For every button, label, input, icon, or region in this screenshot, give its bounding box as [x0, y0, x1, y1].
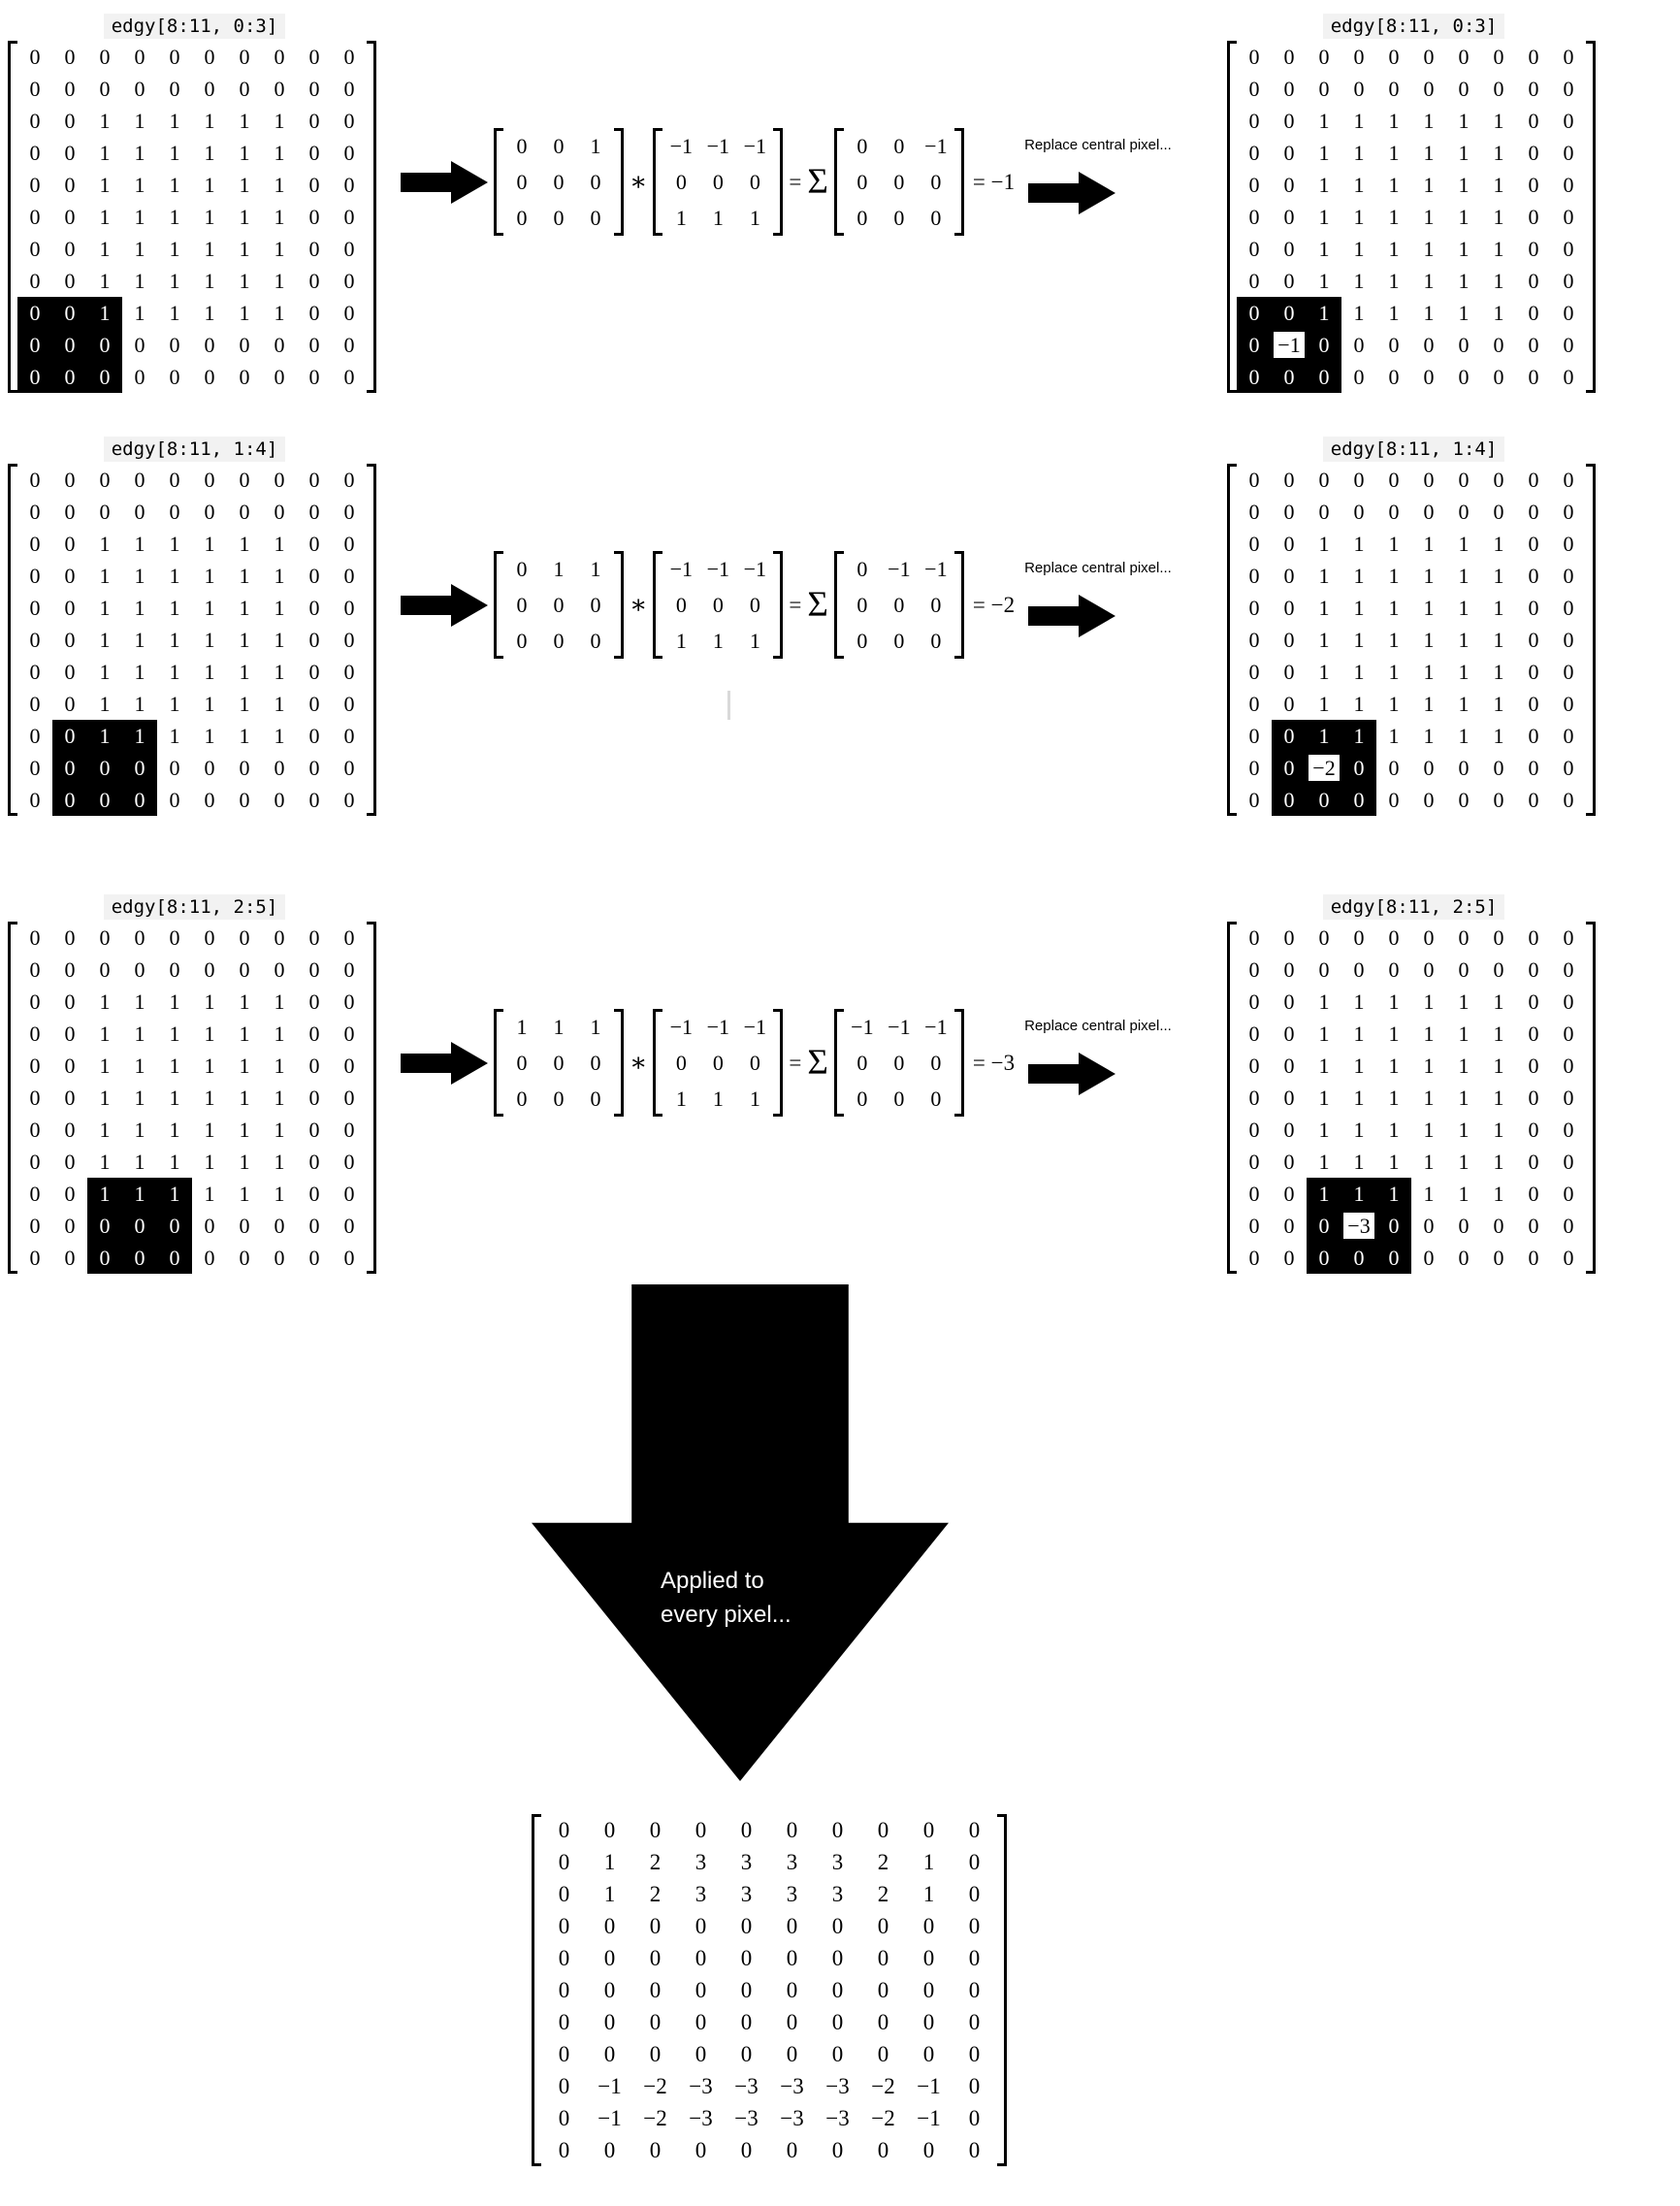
matrix-cell: 0: [332, 688, 367, 720]
replace-central-pixel-label: Replace central pixel...: [1024, 559, 1194, 578]
matrix-cell: 0: [87, 784, 122, 816]
matrix-cell: 0: [297, 752, 332, 784]
matrix-cell: 0: [332, 1050, 367, 1082]
matrix-grid: −1−1−1000000: [844, 1009, 954, 1117]
replaced-pixel-value: −3: [1343, 1213, 1373, 1239]
kernel-matrix: −1−1−1000111: [653, 1009, 783, 1117]
matrix-cell: 1: [87, 105, 122, 137]
matrix-cell: 0: [1481, 73, 1516, 105]
matrix-cell: 1: [122, 1082, 157, 1114]
matrix-cell: 0: [227, 361, 262, 393]
matrix-cell: 0: [952, 2070, 997, 2102]
matrix-cell: 0: [906, 1814, 952, 1846]
matrix-cell: 1: [1341, 1050, 1376, 1082]
matrix-cell: 0: [541, 2102, 587, 2134]
matrix-cell: 0: [1272, 922, 1307, 954]
product-matrix: 00−1000000: [834, 128, 964, 236]
matrix-grid: 0000000000000000000000111111000011111100…: [1237, 41, 1586, 393]
matrix-cell: 0: [577, 200, 614, 236]
matrix-cell: 1: [122, 1146, 157, 1178]
matrix-cell: 3: [769, 1846, 815, 1878]
matrix-cell: 0: [297, 361, 332, 393]
matrix-cell: 0: [815, 1910, 860, 1942]
matrix-cell: 0: [1481, 41, 1516, 73]
matrix-cell: 0: [815, 1942, 860, 1974]
matrix-cell: 0: [332, 1018, 367, 1050]
matrix-cell: 1: [262, 137, 297, 169]
matrix-cell: 0: [297, 496, 332, 528]
matrix-cell: 2: [860, 1878, 906, 1910]
matrix-cell: 1: [87, 1082, 122, 1114]
matrix-cell: 0: [1237, 624, 1272, 656]
matrix-cell: 0: [332, 169, 367, 201]
matrix-cell: −3: [678, 2070, 724, 2102]
matrix-cell: 3: [678, 1878, 724, 1910]
matrix-cell: 0: [952, 1814, 997, 1846]
matrix-cell: 1: [1376, 1146, 1411, 1178]
matrix-cell: 0: [1516, 233, 1551, 265]
matrix-cell: 0: [1272, 1114, 1307, 1146]
matrix-cell: 0: [332, 1114, 367, 1146]
matrix-grid: 0000000000000000000000111111000011111100…: [17, 922, 367, 1274]
matrix-cell: 0: [1272, 105, 1307, 137]
matrix-cell: 0: [1237, 496, 1272, 528]
matrix-cell: 0: [1551, 1018, 1586, 1050]
matrix-cell: 0: [157, 784, 192, 816]
matrix-cell: 0: [1551, 528, 1586, 560]
result-matrix: 0000000000000000000000111111000011111100…: [1227, 464, 1596, 816]
matrix-cell: 0: [881, 587, 918, 623]
matrix-bracket: [8, 922, 17, 1274]
matrix-cell: 0: [52, 1146, 87, 1178]
matrix-cell: 0: [87, 329, 122, 361]
matrix-cell: 1: [157, 560, 192, 592]
result-matrix-block: edgy[8:11, 2:5] 000000000000000000000011…: [1227, 894, 1600, 1279]
matrix-cell: 0: [192, 41, 227, 73]
matrix-cell: 0: [906, 1942, 952, 1974]
matrix-grid: 0000000000000000000000111111000011111100…: [17, 41, 367, 393]
matrix-cell: 0: [678, 2134, 724, 2166]
matrix-cell: 0: [1272, 297, 1307, 329]
matrix-cell: 1: [192, 986, 227, 1018]
matrix-cell: 0: [192, 954, 227, 986]
matrix-cell: 0: [1446, 361, 1481, 393]
applied-to-every-pixel-arrow: Applied to every pixel...: [532, 1284, 949, 1781]
matrix-cell: 1: [122, 624, 157, 656]
matrix-bracket: [954, 551, 964, 659]
matrix-cell: 1: [122, 1178, 157, 1210]
matrix-cell: 1: [192, 560, 227, 592]
matrix-cell: 0: [332, 752, 367, 784]
matrix-cell: 1: [87, 265, 122, 297]
matrix-cell: 1: [1481, 656, 1516, 688]
matrix-cell: 0: [52, 1018, 87, 1050]
matrix-cell: 0: [192, 922, 227, 954]
matrix-cell: 1: [87, 1018, 122, 1050]
matrix-bracket: [1586, 464, 1596, 816]
right-arrow-icon: [1028, 171, 1115, 215]
matrix-cell: 1: [192, 105, 227, 137]
matrix-cell: 1: [87, 986, 122, 1018]
matrix-cell: 0: [632, 1974, 678, 2006]
sum-result: = −1: [973, 170, 1015, 195]
matrix-cell: 0: [297, 784, 332, 816]
matrix-cell: 0: [1446, 922, 1481, 954]
matrix-cell: 0: [192, 329, 227, 361]
matrix-cell: 0: [332, 1146, 367, 1178]
matrix-cell: 1: [1481, 265, 1516, 297]
matrix-cell: 1: [1481, 1050, 1516, 1082]
matrix-cell: 1: [122, 1018, 157, 1050]
matrix-cell: 1: [1307, 986, 1341, 1018]
matrix-cell: 0: [17, 496, 52, 528]
matrix-cell: 0: [1516, 137, 1551, 169]
matrix-cell: 0: [332, 1178, 367, 1210]
source-matrix-slot: 0000000000000000000000111111000011111100…: [8, 922, 376, 1274]
matrix-cell: 1: [1341, 169, 1376, 201]
matrix-cell: 0: [227, 752, 262, 784]
matrix-cell: 1: [157, 986, 192, 1018]
convolution-formula: 111000000 ∗ −1−1−1000111 = Σ −1−1−100000…: [401, 1009, 1015, 1117]
matrix-cell: 0: [87, 922, 122, 954]
matrix-cell: 0: [1272, 464, 1307, 496]
matrix-cell: 0: [918, 1045, 954, 1081]
matrix-cell: 0: [262, 496, 297, 528]
matrix-bracket: [494, 1009, 503, 1117]
matrix-cell: 0: [17, 361, 52, 393]
matrix-cell: 1: [1341, 105, 1376, 137]
matrix-cell: 0: [1341, 922, 1376, 954]
matrix-cell: 0: [1551, 1050, 1586, 1082]
matrix-cell: 1: [1376, 105, 1411, 137]
matrix-cell: 0: [1237, 1210, 1272, 1242]
matrix-cell: 0: [881, 1081, 918, 1117]
matrix-cell: 0: [332, 41, 367, 73]
matrix-cell: 0: [157, 329, 192, 361]
matrix-bracket: [1227, 41, 1237, 393]
matrix-cell: 1: [157, 592, 192, 624]
matrix-cell: 0: [1376, 41, 1411, 73]
matrix-bracket: [367, 41, 376, 393]
matrix-cell: 0: [1481, 329, 1516, 361]
matrix-cell: 1: [1307, 656, 1341, 688]
matrix-cell: 0: [1446, 784, 1481, 816]
matrix-cell: 0: [52, 1178, 87, 1210]
matrix-cell: 1: [1411, 1050, 1446, 1082]
matrix-cell: 1: [1446, 137, 1481, 169]
matrix-cell: 1: [1341, 1146, 1376, 1178]
replace-step: Replace central pixel...: [1024, 136, 1194, 215]
matrix-cell: 0: [1551, 624, 1586, 656]
matrix-cell: 0: [332, 656, 367, 688]
matrix-cell: 1: [1341, 1018, 1376, 1050]
matrix-cell: 0: [17, 1082, 52, 1114]
matrix-cell: 0: [17, 784, 52, 816]
matrix-cell: 1: [192, 720, 227, 752]
matrix-cell: 0: [17, 329, 52, 361]
matrix-slice-label: edgy[8:11, 0:3]: [104, 14, 286, 39]
matrix-cell: 0: [1411, 329, 1446, 361]
label-wrap: edgy[8:11, 1:4]: [1227, 437, 1600, 464]
matrix-cell: 0: [1551, 986, 1586, 1018]
matrix-cell: 0: [17, 1114, 52, 1146]
matrix-cell: 1: [587, 1878, 632, 1910]
matrix-cell: 0: [1411, 496, 1446, 528]
matrix-cell: 0: [1516, 73, 1551, 105]
matrix-cell: 1: [87, 688, 122, 720]
matrix-cell: 0: [736, 587, 773, 623]
matrix-cell: 0: [1272, 784, 1307, 816]
matrix-cell: 0: [1411, 1210, 1446, 1242]
matrix-cell: 0: [1411, 73, 1446, 105]
matrix-cell: 1: [1341, 656, 1376, 688]
matrix-cell: 0: [52, 361, 87, 393]
source-matrix: 0000000000000000000000111111000011111100…: [8, 464, 376, 816]
matrix-cell: 1: [1446, 265, 1481, 297]
matrix-cell: 0: [52, 1210, 87, 1242]
matrix-cell: 0: [632, 1910, 678, 1942]
matrix-cell: 0: [918, 587, 954, 623]
matrix-cell: 0: [881, 128, 918, 164]
matrix-cell: 0: [1376, 496, 1411, 528]
matrix-cell: 1: [699, 200, 736, 236]
matrix-cell: 0: [1307, 1210, 1341, 1242]
matrix-cell: 0: [1551, 201, 1586, 233]
matrix-cell: 0: [632, 1942, 678, 1974]
matrix-cell: 0: [192, 496, 227, 528]
matrix-cell: 0: [87, 464, 122, 496]
matrix-cell: 0: [678, 2038, 724, 2070]
matrix-cell: 1: [662, 1081, 699, 1117]
matrix-cell: 0: [297, 233, 332, 265]
matrix-cell: 1: [1307, 592, 1341, 624]
product-matrix: 0−1−1000000: [834, 551, 964, 659]
matrix-cell: 1: [157, 624, 192, 656]
result-matrix-slot: 0000000000000000000000111111000011111100…: [1227, 464, 1596, 816]
matrix-bracket: [532, 1814, 541, 2166]
matrix-cell: 0: [157, 1242, 192, 1274]
matrix-cell: 0: [1272, 201, 1307, 233]
matrix-cell: 1: [1446, 297, 1481, 329]
matrix-cell: 1: [122, 592, 157, 624]
matrix-bracket: [954, 1009, 964, 1117]
matrix-cell: 0: [227, 73, 262, 105]
matrix-cell: 1: [227, 1050, 262, 1082]
matrix-cell: 1: [1376, 656, 1411, 688]
matrix-cell: 1: [1376, 1114, 1411, 1146]
matrix-cell: 1: [157, 1082, 192, 1114]
matrix-cell: 0: [724, 1814, 769, 1846]
matrix-cell: 1: [192, 528, 227, 560]
matrix-cell: 0: [297, 656, 332, 688]
matrix-cell: 0: [1272, 73, 1307, 105]
matrix-cell: 0: [503, 164, 540, 200]
matrix-cell: 1: [1376, 1082, 1411, 1114]
matrix-cell: 0: [587, 2006, 632, 2038]
matrix-cell: 1: [1376, 528, 1411, 560]
matrix-grid: −1−1−1000111: [662, 128, 773, 236]
matrix-cell: 0: [1481, 954, 1516, 986]
matrix-cell: 0: [297, 41, 332, 73]
matrix-cell: 0: [1551, 592, 1586, 624]
matrix-cell: 0: [1411, 752, 1446, 784]
matrix-cell: 0: [17, 560, 52, 592]
matrix-cell: 0: [17, 1178, 52, 1210]
matrix-cell: 1: [157, 233, 192, 265]
matrix-cell: 1: [1446, 201, 1481, 233]
matrix-cell: 0: [1376, 954, 1411, 986]
patch-matrix-slot: 011000000: [494, 551, 624, 659]
matrix-cell: 0: [577, 1081, 614, 1117]
matrix-cell: 0: [503, 128, 540, 164]
matrix-cell: 1: [1411, 233, 1446, 265]
matrix-cell: 1: [1446, 656, 1481, 688]
matrix-cell: 1: [1341, 201, 1376, 233]
matrix-cell: 0: [1376, 922, 1411, 954]
matrix-bracket: [653, 128, 662, 236]
matrix-cell: 0: [1551, 464, 1586, 496]
matrix-cell: 1: [1411, 624, 1446, 656]
matrix-cell: 1: [157, 656, 192, 688]
matrix-cell: 0: [297, 297, 332, 329]
matrix-cell: 0: [540, 1081, 577, 1117]
matrix-cell: 0: [678, 1942, 724, 1974]
matrix-cell: 0: [844, 551, 881, 587]
matrix-cell: 0: [52, 464, 87, 496]
matrix-cell: 0: [1516, 329, 1551, 361]
matrix-cell: 0: [1551, 496, 1586, 528]
matrix-cell: 0: [844, 1045, 881, 1081]
source-matrix-slot: 0000000000000000000000111111000011111100…: [8, 464, 376, 816]
matrix-cell: 1: [87, 1146, 122, 1178]
matrix-cell: 0: [17, 922, 52, 954]
matrix-cell: 1: [1411, 265, 1446, 297]
matrix-cell: 0: [541, 2038, 587, 2070]
matrix-cell: 1: [192, 201, 227, 233]
matrix-cell: 0: [769, 2006, 815, 2038]
matrix-cell: 1: [87, 528, 122, 560]
matrix-cell: −1: [736, 128, 773, 164]
matrix-cell: 0: [52, 1114, 87, 1146]
matrix-cell: 1: [1446, 233, 1481, 265]
replaced-pixel-value: −1: [1274, 332, 1304, 358]
matrix-cell: 0: [332, 105, 367, 137]
matrix-cell: 0: [297, 169, 332, 201]
matrix-cell: 0: [262, 361, 297, 393]
matrix-cell: 0: [1272, 361, 1307, 393]
matrix-cell: 0: [632, 1814, 678, 1846]
matrix-cell: 0: [17, 528, 52, 560]
final-result-matrix-wrap: 0000000000012333321001233332100000000000…: [532, 1814, 1680, 2171]
replaced-pixel-value: −2: [1308, 755, 1339, 781]
matrix-cell: 0: [1481, 361, 1516, 393]
matrix-cell: 1: [262, 169, 297, 201]
matrix-cell: 1: [1307, 1050, 1341, 1082]
matrix-cell: 0: [1516, 1018, 1551, 1050]
matrix-cell: 1: [1307, 169, 1341, 201]
matrix-cell: 0: [540, 128, 577, 164]
matrix-cell: 0: [1376, 361, 1411, 393]
matrix-cell: 0: [297, 624, 332, 656]
matrix-cell: 1: [1307, 265, 1341, 297]
matrix-cell: 0: [297, 1210, 332, 1242]
matrix-cell: 0: [17, 954, 52, 986]
matrix-cell: 1: [157, 1146, 192, 1178]
matrix-cell: 0: [52, 656, 87, 688]
kernel-matrix-slot: −1−1−1000111: [653, 551, 783, 659]
matrix-cell: 1: [1411, 169, 1446, 201]
matrix-cell: 0: [1272, 233, 1307, 265]
matrix-cell: 0: [227, 41, 262, 73]
matrix-cell: 0: [17, 656, 52, 688]
matrix-cell: 1: [227, 986, 262, 1018]
matrix-cell: 1: [1307, 624, 1341, 656]
matrix-cell: 0: [17, 1018, 52, 1050]
patch-matrix: 111000000: [494, 1009, 624, 1117]
matrix-cell: 0: [541, 2070, 587, 2102]
matrix-cell: 1: [262, 688, 297, 720]
matrix-cell: 0: [1272, 656, 1307, 688]
matrix-cell: 0: [1376, 1242, 1411, 1274]
matrix-cell: 0: [1376, 752, 1411, 784]
matrix-cell: 0: [157, 361, 192, 393]
sigma-symbol: Σ: [807, 161, 828, 203]
matrix-cell: 1: [157, 528, 192, 560]
matrix-cell: 0: [541, 1910, 587, 1942]
matrix-cell: 0: [906, 1974, 952, 2006]
matrix-cell: 0: [52, 233, 87, 265]
matrix-cell: 1: [1411, 1178, 1446, 1210]
matrix-cell: 1: [227, 1178, 262, 1210]
matrix-bracket: [954, 128, 964, 236]
matrix-cell: 0: [332, 233, 367, 265]
matrix-cell: 0: [122, 1242, 157, 1274]
matrix-cell: 0: [52, 560, 87, 592]
product-matrix-slot: 00−1000000: [834, 128, 964, 236]
matrix-cell: 0: [87, 496, 122, 528]
matrix-cell: 0: [332, 624, 367, 656]
matrix-cell: 0: [157, 922, 192, 954]
matrix-cell: 0: [662, 164, 699, 200]
matrix-cell: 0: [540, 623, 577, 659]
matrix-cell: 0: [541, 1974, 587, 2006]
matrix-cell: 0: [1376, 784, 1411, 816]
matrix-cell: 1: [122, 297, 157, 329]
matrix-cell: −1: [587, 2102, 632, 2134]
matrix-cell: 0: [1446, 496, 1481, 528]
product-matrix-slot: 0−1−1000000: [834, 551, 964, 659]
matrix-cell: 1: [1376, 986, 1411, 1018]
matrix-cell: 0: [1341, 73, 1376, 105]
matrix-cell: 0: [17, 1146, 52, 1178]
matrix-cell: 0: [1516, 1082, 1551, 1114]
matrix-cell: 0: [860, 2134, 906, 2166]
matrix-cell: 1: [1376, 297, 1411, 329]
matrix-cell: 0: [1237, 986, 1272, 1018]
matrix-cell: 0: [1551, 720, 1586, 752]
matrix-cell: 1: [1341, 592, 1376, 624]
matrix-cell: 1: [1446, 1082, 1481, 1114]
matrix-cell: 0: [332, 720, 367, 752]
matrix-cell: 0: [192, 464, 227, 496]
matrix-cell: 0: [881, 200, 918, 236]
matrix-bracket: [8, 41, 17, 393]
matrix-cell: −1: [587, 2070, 632, 2102]
matrix-cell: 0: [1516, 752, 1551, 784]
matrix-cell: 0: [587, 1814, 632, 1846]
matrix-cell: 2: [632, 1846, 678, 1878]
matrix-cell: 0: [1237, 922, 1272, 954]
